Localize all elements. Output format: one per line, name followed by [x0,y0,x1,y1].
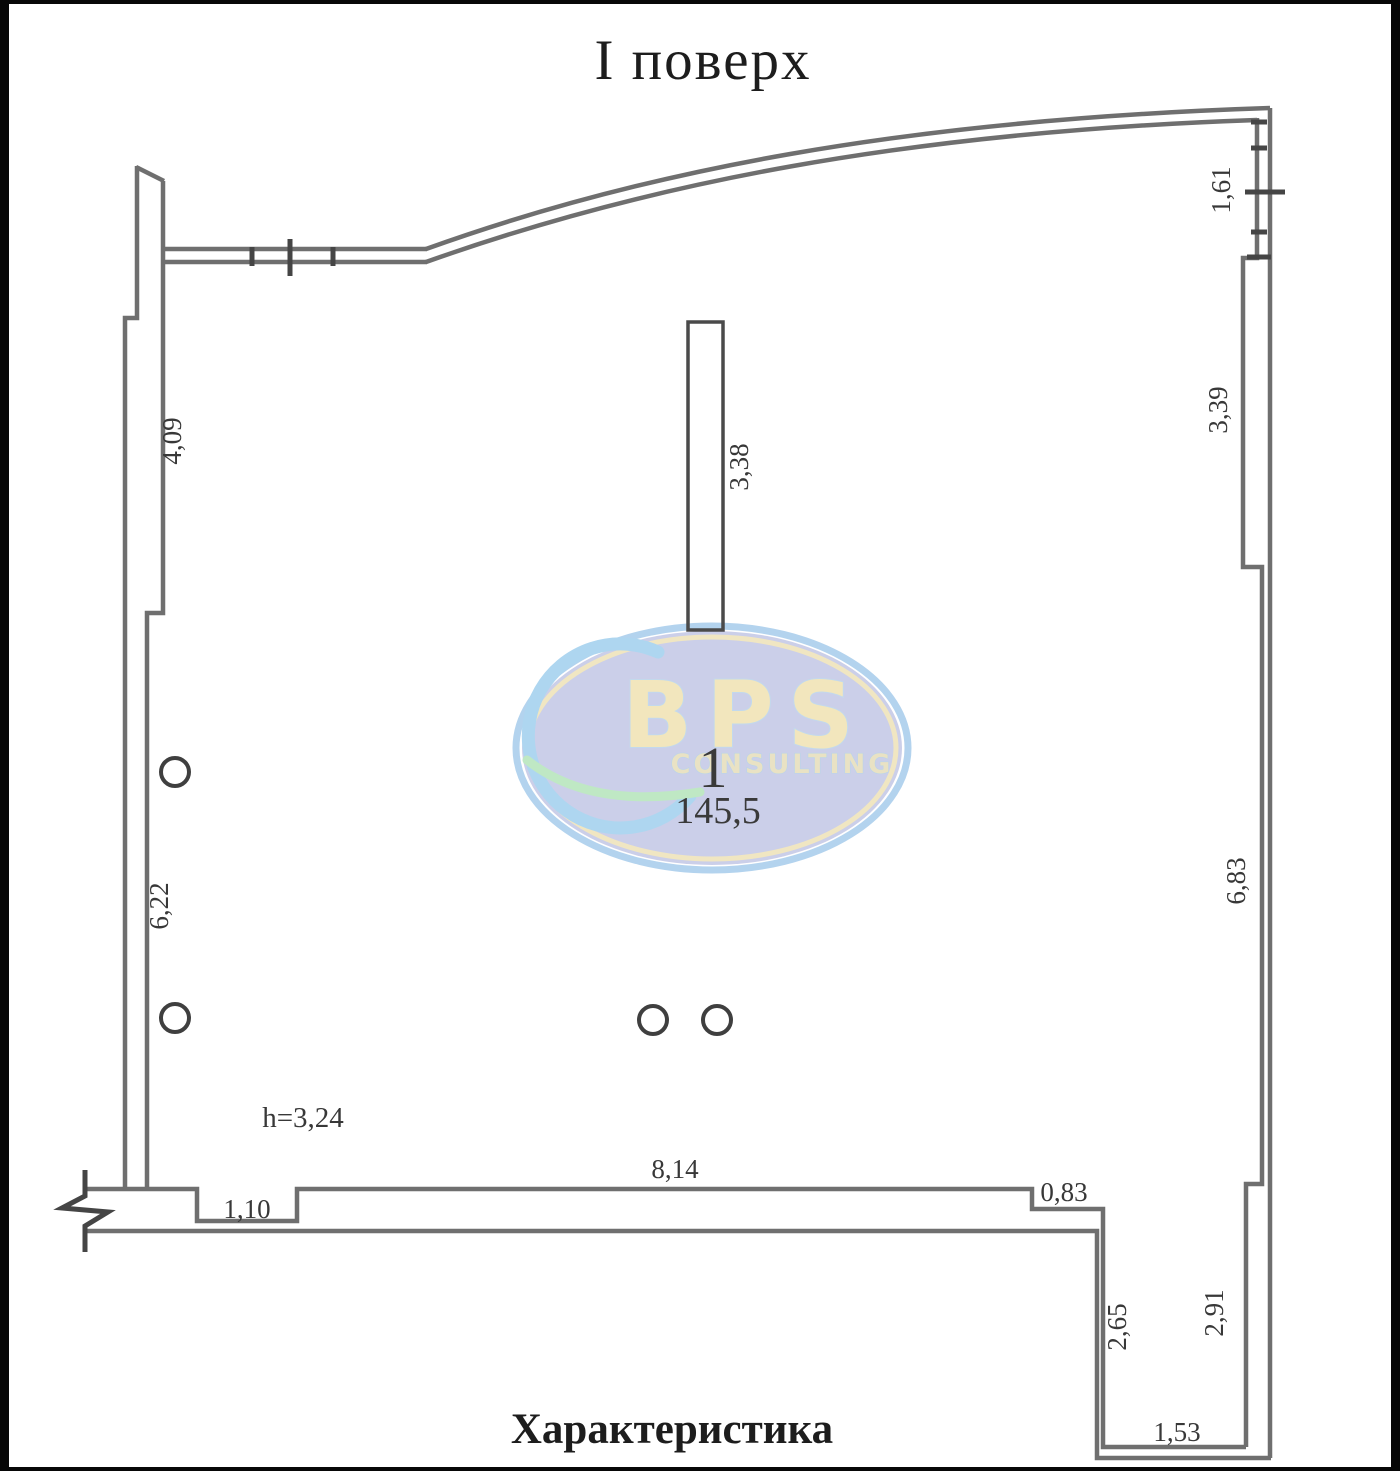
left-wall-outer-line [125,166,137,1189]
footer-heading: Характеристика [511,1406,833,1453]
right-wall-inner-line [1243,118,1262,1447]
column-circle [703,1006,731,1034]
floorplan-page: BPS CONSULTING [0,0,1400,1471]
dim-right-lower: 6,83 [1221,857,1251,904]
dim-bottom-length: 8,14 [651,1154,699,1184]
left-wall-inner-line [147,181,163,1189]
dim-bottom-opening-right: 0,83 [1040,1177,1087,1207]
dim-left-upper: 4,09 [157,417,187,464]
dim-left-lower: 6,22 [144,882,174,929]
left-wall-top-cap-line [136,167,164,181]
curved-wall-outer-line [426,108,1270,249]
column-circle [161,1004,189,1032]
dim-partition: 3,38 [724,443,754,490]
column-circle [161,758,189,786]
dim-annex-right: 2,91 [1199,1289,1229,1336]
column-circle [639,1006,667,1034]
dim-bottom-opening-left: 1,10 [223,1194,270,1224]
ceiling-height-note: h=3,24 [262,1102,344,1134]
dim-annex-width: 1,53 [1153,1417,1200,1447]
floor-plan-drawing: BPS CONSULTING [9,4,1391,1467]
partition-wall [688,322,723,630]
page-title: І поверх [594,29,811,92]
break-mark-icon [62,1170,108,1252]
dim-right-upper: 3,39 [1203,386,1233,433]
dim-annex-left: 2,65 [1102,1303,1132,1350]
dim-right-window: 1,61 [1206,166,1236,213]
curved-wall-inner-line [426,120,1257,262]
room-area: 145,5 [675,790,761,832]
